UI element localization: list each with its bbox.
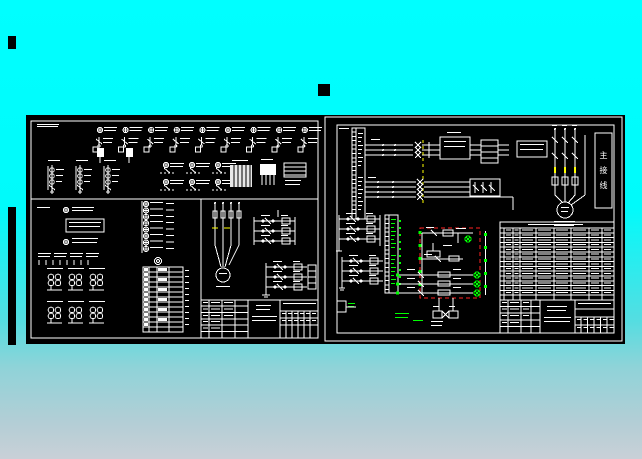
draw-s bbox=[283, 303, 316, 304]
draw-s bbox=[211, 328, 220, 329]
draw-c bbox=[69, 307, 75, 313]
draw-s bbox=[281, 235, 288, 236]
main-wiring-sheet: 主接线 bbox=[323, 115, 625, 344]
draw-cp bbox=[174, 127, 179, 132]
draw-s bbox=[506, 249, 511, 250]
draw-s bbox=[431, 321, 443, 326]
draw-s bbox=[224, 308, 233, 309]
draw-r bbox=[144, 308, 148, 311]
draw-s bbox=[273, 261, 282, 262]
draw-s bbox=[604, 230, 611, 231]
draw-s bbox=[610, 327, 614, 328]
legend-sheet-drawing bbox=[26, 115, 323, 344]
draw-s bbox=[522, 244, 533, 245]
draw-s bbox=[185, 294, 189, 295]
draw-s bbox=[180, 138, 190, 143]
draw-r bbox=[337, 301, 346, 312]
draw-s bbox=[573, 292, 586, 293]
draw-s bbox=[150, 202, 163, 203]
draw-cp bbox=[143, 240, 148, 245]
draw-cp bbox=[143, 227, 148, 232]
draw-r bbox=[144, 278, 148, 281]
draw-s bbox=[591, 254, 599, 255]
motor-circle bbox=[557, 202, 573, 218]
draw-s bbox=[538, 235, 551, 236]
draw-s bbox=[456, 228, 466, 229]
draw-s bbox=[224, 315, 233, 316]
draw-s bbox=[185, 312, 189, 313]
draw-s bbox=[556, 273, 568, 274]
draw-c bbox=[97, 274, 103, 280]
draw-s bbox=[205, 138, 215, 143]
draw-c bbox=[377, 191, 379, 193]
draw-s bbox=[426, 227, 434, 228]
draw-r bbox=[119, 147, 124, 152]
draw-s bbox=[522, 278, 533, 279]
draw-s bbox=[556, 254, 568, 255]
draw-s bbox=[349, 275, 358, 276]
draw-c bbox=[394, 149, 396, 151]
draw-s bbox=[522, 263, 533, 264]
draw-s bbox=[453, 287, 461, 288]
draw-s bbox=[293, 281, 300, 282]
draw-s bbox=[282, 138, 292, 143]
draw-c bbox=[382, 154, 384, 156]
draw-c bbox=[76, 313, 82, 319]
draw-s bbox=[185, 288, 189, 289]
draw-s bbox=[232, 160, 248, 161]
title-text bbox=[252, 316, 277, 321]
draw-c bbox=[107, 191, 109, 193]
draw-s bbox=[37, 207, 50, 208]
draw-c bbox=[90, 307, 96, 313]
indicator-lamp bbox=[474, 281, 480, 287]
draw-s bbox=[206, 127, 219, 131]
draw-c bbox=[238, 202, 240, 204]
draw-c bbox=[377, 186, 379, 188]
draw-s bbox=[506, 273, 511, 274]
draw-s bbox=[515, 235, 519, 236]
draw-c bbox=[48, 280, 54, 286]
draw-l bbox=[216, 168, 222, 173]
draw-s bbox=[604, 292, 611, 293]
draw-cp bbox=[143, 221, 148, 226]
draw-cp bbox=[277, 127, 282, 132]
draw-r bbox=[247, 147, 252, 152]
draw-s bbox=[309, 127, 322, 131]
draw-s bbox=[170, 163, 184, 167]
draw-cp bbox=[215, 162, 220, 167]
draw-s bbox=[203, 315, 208, 316]
draw-s bbox=[211, 321, 220, 322]
draw-s bbox=[520, 144, 544, 150]
draw-cp bbox=[143, 233, 148, 238]
draw-s bbox=[523, 309, 529, 310]
draw-s bbox=[89, 301, 105, 302]
draw-s bbox=[590, 327, 594, 328]
draw-s bbox=[219, 273, 227, 274]
corner-label bbox=[37, 124, 59, 127]
draw-c bbox=[69, 280, 75, 286]
terminal-square bbox=[484, 285, 487, 288]
draw-s bbox=[181, 127, 194, 131]
draw-s bbox=[556, 249, 568, 250]
draw-s bbox=[573, 273, 586, 274]
draw-s bbox=[577, 327, 581, 328]
draw-s bbox=[369, 265, 376, 266]
legend-sheet bbox=[26, 115, 323, 344]
draw-s bbox=[48, 160, 60, 161]
draw-c bbox=[48, 313, 54, 319]
draw-r bbox=[433, 311, 442, 318]
draw-s bbox=[506, 259, 511, 260]
draw-c bbox=[574, 128, 576, 130]
draw-s bbox=[604, 239, 611, 240]
draw-cp bbox=[189, 179, 194, 184]
draw-s bbox=[72, 207, 94, 211]
draw-s bbox=[522, 287, 533, 288]
draw-s bbox=[522, 273, 533, 274]
draw-cp bbox=[143, 208, 148, 213]
draw-s bbox=[591, 278, 599, 279]
draw-s bbox=[150, 247, 163, 248]
draw-r bbox=[170, 147, 175, 152]
draw-s bbox=[261, 215, 270, 216]
draw-s bbox=[502, 309, 507, 310]
draw-r bbox=[144, 313, 148, 316]
draw-s bbox=[166, 235, 174, 236]
draw-s bbox=[104, 160, 116, 161]
draw-t: 主 bbox=[600, 150, 608, 160]
indicator-lamp bbox=[465, 236, 471, 242]
draw-r bbox=[195, 147, 200, 152]
draw-s bbox=[556, 268, 568, 269]
draw-r bbox=[144, 303, 148, 306]
draw-s bbox=[552, 125, 557, 126]
draw-s bbox=[358, 133, 363, 166]
draw-s bbox=[288, 313, 292, 314]
draw-s bbox=[369, 255, 376, 256]
draw-l bbox=[473, 185, 479, 191]
draw-s bbox=[556, 239, 568, 240]
draw-s bbox=[203, 302, 208, 303]
draw-c bbox=[377, 196, 379, 198]
draw-s bbox=[166, 216, 174, 217]
draw-s bbox=[538, 239, 551, 240]
draw-s bbox=[407, 278, 415, 279]
draw-s bbox=[185, 306, 189, 307]
draw-s bbox=[224, 302, 233, 303]
draw-s bbox=[69, 222, 101, 227]
draw-c bbox=[48, 274, 54, 280]
draw-s bbox=[150, 221, 163, 222]
draw-cp bbox=[63, 207, 68, 212]
draw-s bbox=[308, 138, 318, 143]
draw-c bbox=[76, 280, 82, 286]
draw-s bbox=[506, 268, 511, 269]
draw-s bbox=[366, 233, 373, 234]
draw-s bbox=[150, 234, 163, 235]
draw-s bbox=[185, 276, 189, 277]
draw-s bbox=[407, 269, 415, 270]
draw-s bbox=[597, 319, 601, 320]
draw-s bbox=[285, 180, 301, 185]
terminal-square bbox=[484, 246, 487, 249]
draw-cp bbox=[251, 127, 256, 132]
draw-s bbox=[150, 208, 163, 209]
draw-s bbox=[506, 254, 511, 255]
draw-s bbox=[591, 287, 599, 288]
draw-r bbox=[158, 288, 167, 291]
draw-s bbox=[577, 319, 581, 320]
draw-s bbox=[232, 127, 245, 131]
draw-s bbox=[306, 320, 310, 321]
draw-s bbox=[258, 127, 271, 131]
draw-l bbox=[190, 168, 196, 173]
draw-s bbox=[515, 292, 519, 293]
draw-s bbox=[257, 138, 267, 143]
draw-s bbox=[196, 180, 210, 184]
draw-cp bbox=[97, 127, 102, 132]
draw-s bbox=[522, 268, 533, 269]
draw-cp bbox=[143, 201, 148, 206]
draw-s bbox=[38, 253, 51, 257]
draw-s bbox=[47, 301, 63, 302]
draw-cp bbox=[63, 239, 68, 244]
draw-s bbox=[604, 244, 611, 245]
draw-cp bbox=[143, 246, 148, 251]
draw-s bbox=[556, 263, 568, 264]
draw-c bbox=[90, 280, 96, 286]
draw-s bbox=[515, 268, 519, 269]
draw-s bbox=[573, 287, 586, 288]
draw-s bbox=[294, 313, 298, 314]
window-artifact bbox=[8, 36, 16, 49]
draw-s bbox=[573, 230, 586, 231]
title-text bbox=[547, 306, 567, 311]
draw-s bbox=[395, 313, 409, 318]
draw-s bbox=[281, 215, 288, 216]
draw-s bbox=[522, 239, 533, 240]
draw-s bbox=[573, 259, 586, 260]
draw-r bbox=[298, 147, 303, 152]
draw-r bbox=[158, 298, 167, 301]
draw-s bbox=[506, 287, 511, 288]
draw-s bbox=[561, 207, 569, 212]
draw-c bbox=[97, 307, 103, 313]
draw-s bbox=[591, 263, 599, 264]
terminal-square bbox=[396, 274, 399, 277]
draw-s bbox=[584, 319, 588, 320]
draw-s bbox=[556, 244, 568, 245]
draw-s bbox=[348, 303, 355, 307]
draw-cp bbox=[225, 127, 230, 132]
terminal-dot bbox=[399, 220, 401, 222]
draw-s bbox=[413, 320, 423, 321]
draw-s bbox=[70, 253, 83, 257]
draw-s bbox=[590, 319, 594, 320]
draw-s bbox=[103, 138, 113, 143]
draw-c bbox=[48, 307, 54, 313]
draw-c bbox=[97, 280, 103, 286]
draw-c bbox=[155, 258, 162, 265]
draw-c bbox=[55, 274, 61, 280]
draw-s bbox=[573, 283, 586, 284]
draw-s bbox=[185, 324, 189, 325]
draw-s bbox=[72, 238, 98, 243]
draw-c bbox=[377, 181, 379, 183]
draw-s bbox=[573, 235, 586, 236]
draw-s bbox=[604, 235, 611, 236]
indicator-lamp bbox=[474, 272, 480, 278]
draw-l bbox=[481, 185, 487, 191]
draw-s bbox=[391, 219, 396, 248]
draw-s bbox=[283, 127, 296, 131]
draw-c bbox=[382, 144, 384, 146]
draw-s bbox=[522, 254, 533, 255]
draw-s bbox=[591, 268, 599, 269]
draw-s bbox=[76, 160, 88, 161]
draw-s bbox=[591, 249, 599, 250]
terminal-dot bbox=[399, 255, 401, 257]
draw-s bbox=[591, 230, 599, 231]
draw-l bbox=[489, 185, 495, 191]
draw-s bbox=[282, 313, 286, 314]
draw-s bbox=[282, 320, 286, 321]
draw-cp bbox=[163, 162, 168, 167]
draw-s bbox=[591, 235, 599, 236]
draw-c bbox=[392, 196, 394, 198]
draw-c bbox=[222, 202, 224, 204]
draw-r bbox=[144, 288, 148, 291]
draw-s bbox=[515, 244, 519, 245]
draw-s bbox=[506, 235, 511, 236]
draw-r bbox=[158, 318, 167, 321]
draw-s bbox=[604, 268, 611, 269]
draw-cp bbox=[189, 162, 194, 167]
draw-s bbox=[515, 273, 519, 274]
draw-s bbox=[54, 253, 67, 257]
draw-r bbox=[449, 311, 458, 318]
draw-r bbox=[144, 268, 148, 271]
draw-s bbox=[346, 223, 355, 224]
draw-s bbox=[538, 249, 551, 250]
draw-c bbox=[90, 274, 96, 280]
draw-s bbox=[510, 322, 519, 323]
draw-s bbox=[154, 138, 164, 143]
draw-s bbox=[358, 177, 363, 210]
draw-s bbox=[591, 283, 599, 284]
draw-s bbox=[261, 235, 270, 236]
draw-r bbox=[144, 298, 148, 301]
main-wiring-drawing: 主接线 bbox=[323, 115, 625, 344]
draw-l bbox=[164, 185, 170, 190]
draw-s bbox=[591, 244, 599, 245]
draw-cp bbox=[163, 179, 168, 184]
draw-s bbox=[155, 127, 168, 131]
draw-c bbox=[76, 274, 82, 280]
draw-s bbox=[522, 249, 533, 250]
draw-s bbox=[506, 244, 511, 245]
draw-s bbox=[573, 268, 586, 269]
draw-c bbox=[55, 280, 61, 286]
draw-s bbox=[288, 320, 292, 321]
draw-c bbox=[69, 274, 75, 280]
draw-cp bbox=[200, 127, 205, 132]
draw-s bbox=[584, 327, 588, 328]
draw-s bbox=[166, 229, 174, 230]
draw-s bbox=[604, 273, 611, 274]
draw-c bbox=[69, 313, 75, 319]
draw-s bbox=[506, 239, 511, 240]
draw-s bbox=[449, 306, 455, 307]
parts-table-header bbox=[528, 224, 583, 225]
draw-c bbox=[51, 191, 53, 193]
draw-s bbox=[573, 249, 586, 250]
draw-s bbox=[556, 230, 568, 231]
draw-s bbox=[515, 254, 519, 255]
draw-s bbox=[591, 273, 599, 274]
draw-s bbox=[573, 278, 586, 279]
terminal-dot bbox=[399, 227, 401, 229]
terminal-dot bbox=[399, 248, 401, 250]
terminal-square bbox=[396, 292, 399, 295]
draw-s bbox=[604, 249, 611, 250]
draw-s bbox=[312, 313, 316, 314]
draw-s bbox=[104, 127, 117, 131]
draw-c bbox=[90, 313, 96, 319]
draw-s bbox=[150, 240, 163, 241]
draw-s bbox=[293, 271, 300, 272]
draw-s bbox=[112, 169, 120, 182]
draw-s bbox=[366, 223, 373, 224]
draw-s bbox=[211, 308, 220, 309]
draw-s bbox=[371, 139, 380, 140]
draw-s bbox=[407, 287, 415, 288]
draw-s bbox=[216, 286, 230, 287]
draw-c bbox=[392, 181, 394, 183]
terminal-square bbox=[419, 244, 422, 247]
draw-r bbox=[230, 165, 252, 187]
draw-s bbox=[573, 254, 586, 255]
draw-s bbox=[591, 292, 599, 293]
desktop-background: 主接线 bbox=[0, 0, 642, 459]
draw-c bbox=[97, 313, 103, 319]
draw-s bbox=[515, 263, 519, 264]
draw-s bbox=[506, 292, 511, 293]
draw-s bbox=[556, 278, 568, 279]
draw-cp bbox=[302, 127, 307, 132]
draw-s bbox=[515, 249, 519, 250]
draw-c bbox=[214, 202, 216, 204]
draw-s bbox=[603, 327, 607, 328]
terminal-square bbox=[396, 283, 399, 286]
draw-s bbox=[261, 159, 273, 160]
draw-s bbox=[211, 302, 220, 303]
draw-r bbox=[158, 308, 167, 311]
draw-r bbox=[144, 273, 148, 276]
draw-s bbox=[515, 283, 519, 284]
draw-s bbox=[538, 278, 551, 279]
draw-l bbox=[215, 245, 221, 267]
draw-s bbox=[185, 300, 189, 301]
draw-s bbox=[166, 241, 174, 242]
terminal-dot bbox=[399, 234, 401, 236]
draw-r bbox=[144, 147, 149, 152]
draw-r bbox=[158, 278, 167, 281]
draw-l bbox=[555, 195, 563, 203]
draw-s bbox=[604, 254, 611, 255]
